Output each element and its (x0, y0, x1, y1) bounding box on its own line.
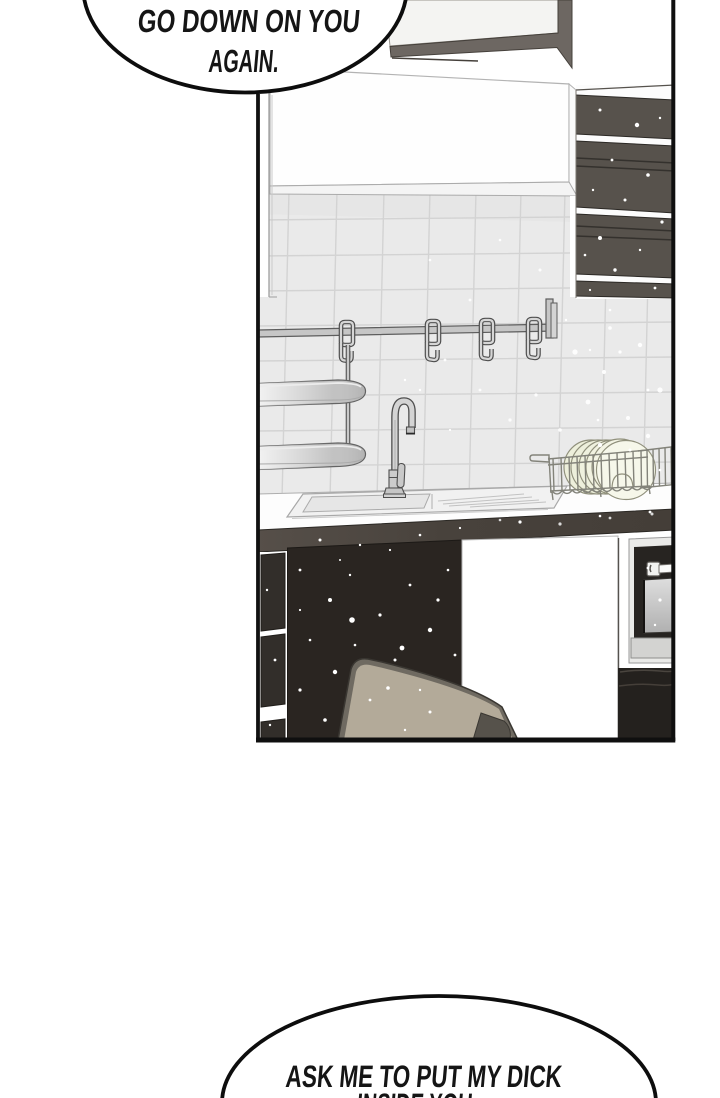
svg-text:GO DOWN ON YOU: GO DOWN ON YOU (136, 3, 361, 39)
svg-text:AGAIN.: AGAIN. (207, 43, 280, 79)
svg-text:INSIDE YOU...: INSIDE YOU... (355, 1087, 490, 1098)
